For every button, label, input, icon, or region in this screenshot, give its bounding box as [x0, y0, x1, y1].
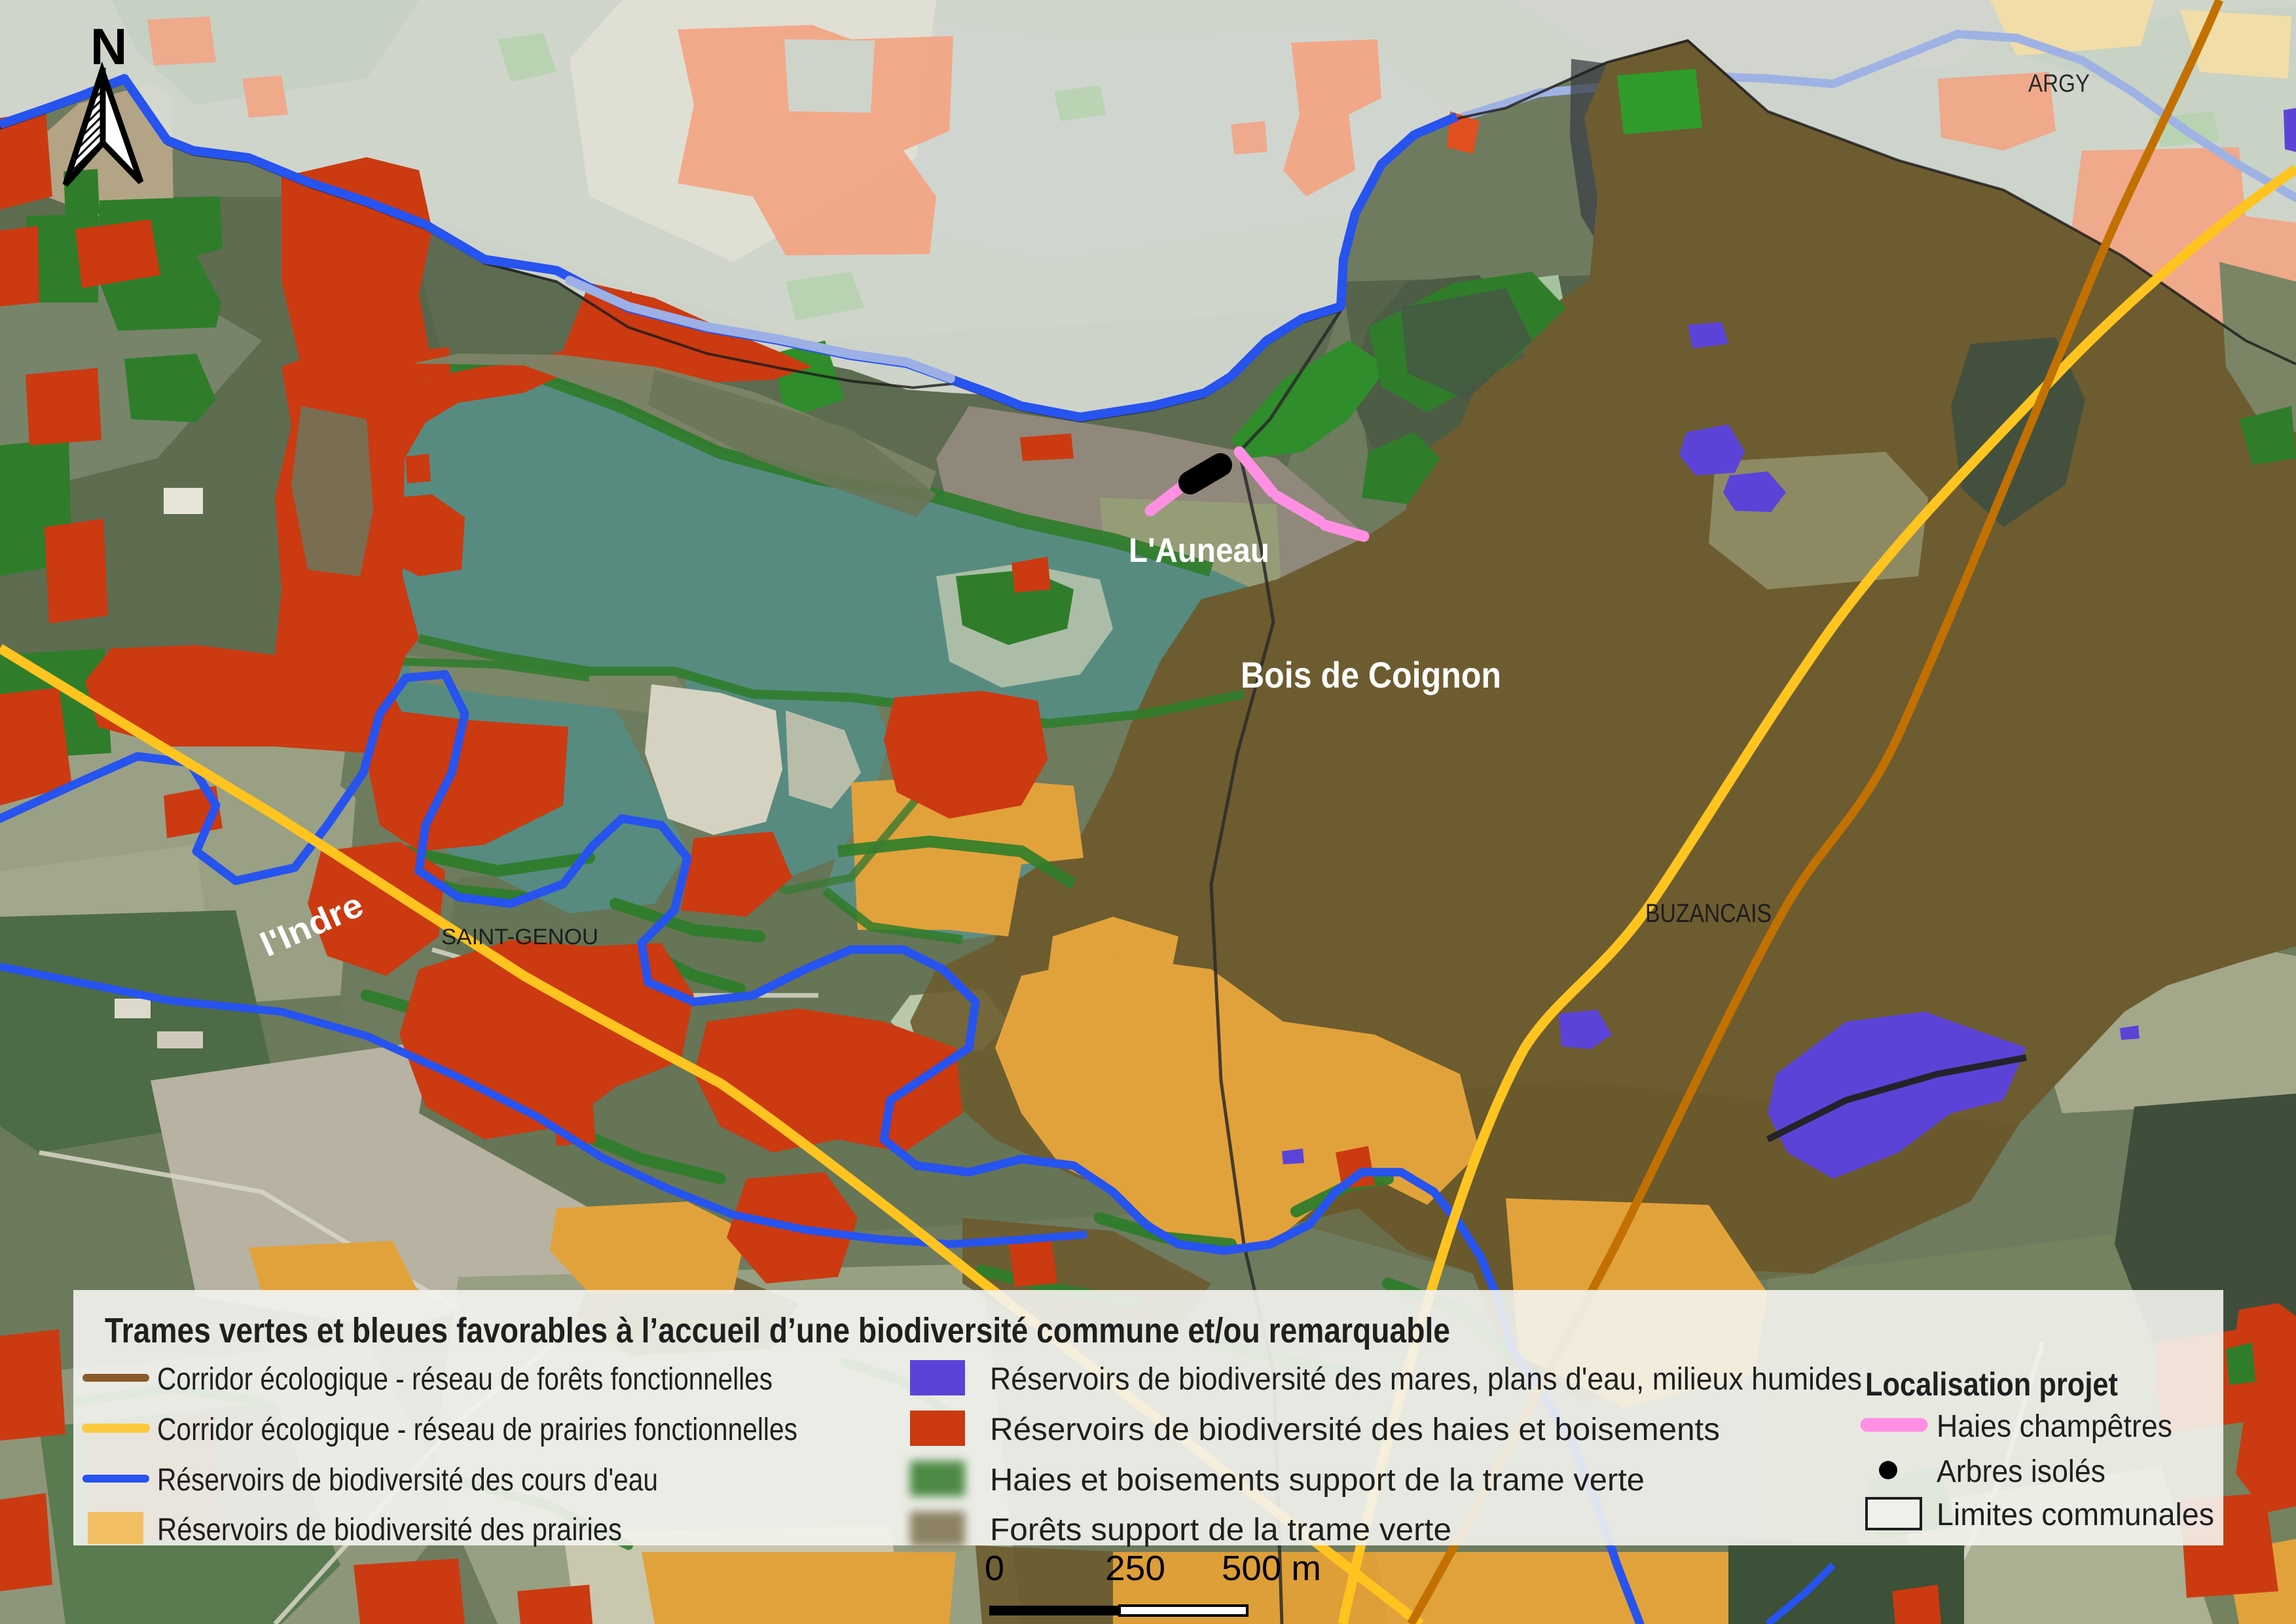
svg-text:500 m: 500 m: [1222, 1549, 1321, 1588]
svg-text:250: 250: [1105, 1549, 1165, 1588]
svg-text:Trames vertes et bleues favora: Trames vertes et bleues favorables à l’a…: [105, 1311, 1450, 1350]
svg-text:SAINT-GENOU: SAINT-GENOU: [441, 925, 598, 950]
svg-text:L'Auneau: L'Auneau: [1129, 532, 1269, 570]
svg-text:Corridor écologique - réseau d: Corridor écologique - réseau de prairies…: [157, 1412, 797, 1447]
svg-text:Limites communales: Limites communales: [1937, 1498, 2214, 1532]
svg-text:0: 0: [985, 1549, 1004, 1588]
svg-text:N: N: [90, 18, 127, 75]
svg-text:Localisation projet: Localisation projet: [1865, 1366, 2118, 1403]
svg-text:Réservoirs de biodiversité des: Réservoirs de biodiversité des mares, pl…: [990, 1362, 1862, 1397]
svg-text:Réservoirs de biodiversité des: Réservoirs de biodiversité des haies et …: [990, 1412, 1720, 1447]
svg-text:Arbres isolés: Arbres isolés: [1937, 1454, 2105, 1489]
svg-text:Haies et boisements support de: Haies et boisements support de la trame …: [990, 1463, 1645, 1498]
svg-text:ARGY: ARGY: [2028, 70, 2090, 98]
svg-text:Réservoirs de biodiversité des: Réservoirs de biodiversité des prairies: [157, 1513, 622, 1547]
svg-text:Haies champêtres: Haies champêtres: [1937, 1409, 2172, 1444]
svg-text:Bois de Coignon: Bois de Coignon: [1241, 654, 1501, 695]
svg-text:Réservoirs de biodiversité des: Réservoirs de biodiversité des cours d'e…: [157, 1463, 658, 1498]
svg-text:Corridor écologique - réseau d: Corridor écologique - réseau de forêts f…: [157, 1362, 773, 1397]
svg-text:BUZANCAIS: BUZANCAIS: [1645, 899, 1772, 928]
svg-text:Forêts support de la trame ver: Forêts support de la trame verte: [990, 1513, 1451, 1547]
